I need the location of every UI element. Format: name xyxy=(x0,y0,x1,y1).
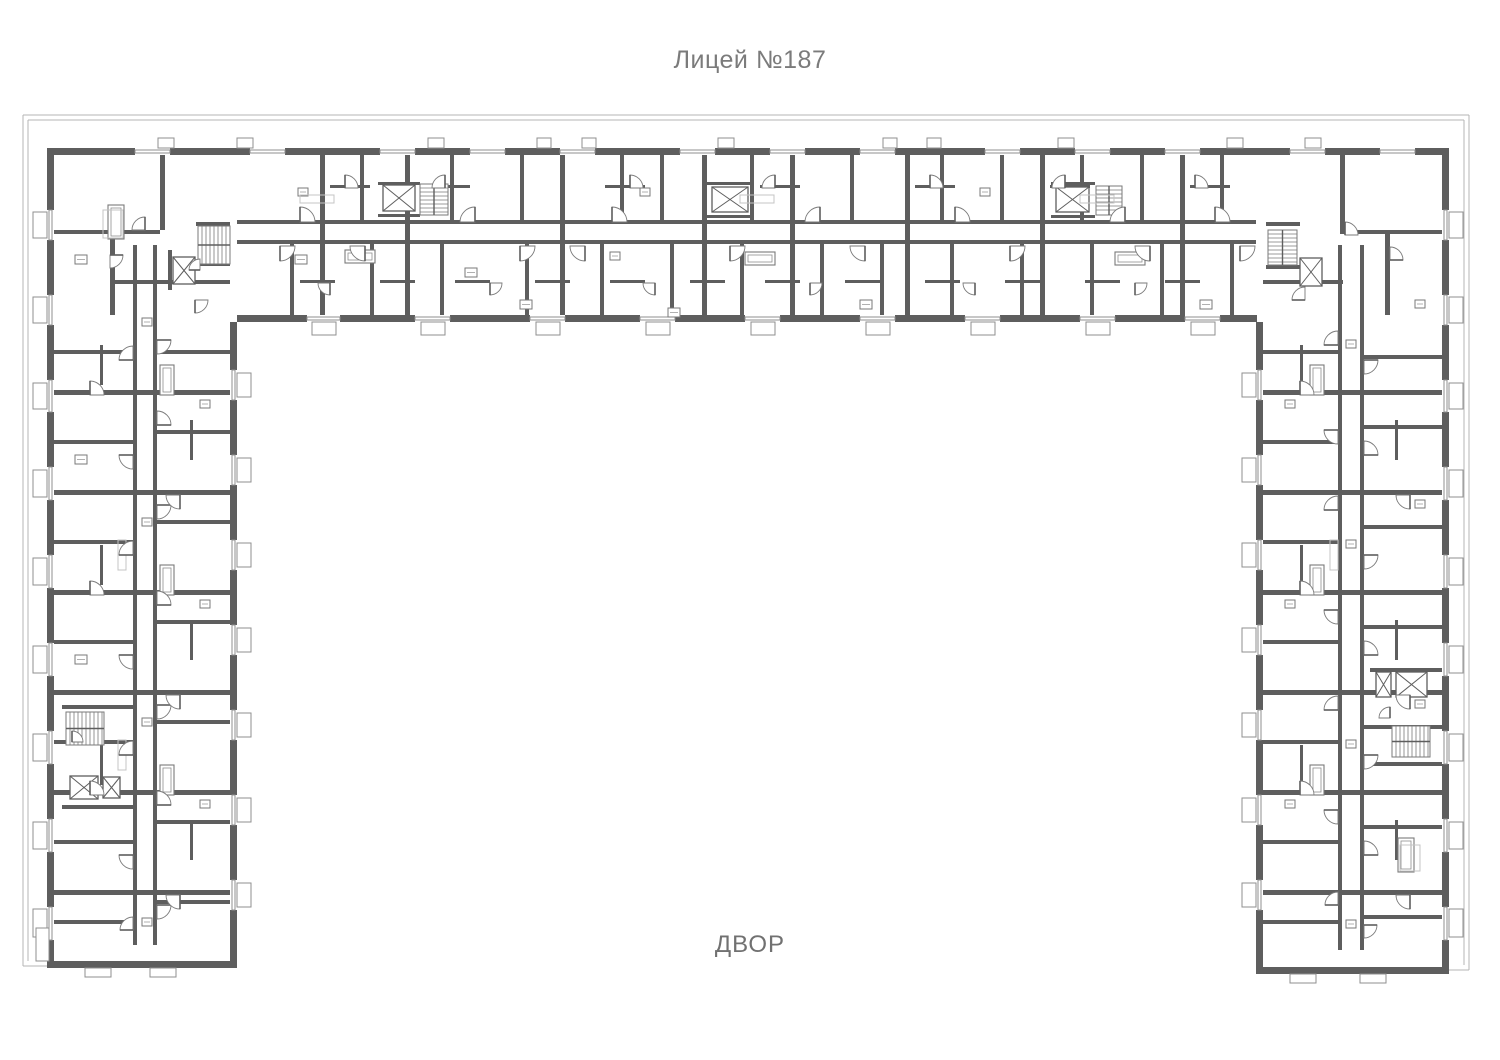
window-sill xyxy=(1449,558,1463,585)
door-swing xyxy=(1324,610,1338,624)
wall-segment xyxy=(1000,155,1004,220)
door-swing xyxy=(762,175,775,188)
window-opening xyxy=(530,317,565,320)
wall-segment xyxy=(707,182,753,185)
wall-segment xyxy=(47,148,135,155)
wall-segment xyxy=(1360,330,1364,950)
wall-segment xyxy=(196,222,230,226)
window-opening xyxy=(49,210,52,240)
wall-segment xyxy=(110,230,115,315)
wall-segment xyxy=(54,890,230,895)
wall-segment xyxy=(230,322,237,370)
wall-segment xyxy=(675,315,745,322)
window-sill xyxy=(1242,543,1256,567)
wall-segment xyxy=(380,280,415,283)
window-sill xyxy=(1449,383,1463,409)
window-opening xyxy=(860,150,895,153)
door-swing xyxy=(110,255,123,268)
window-sill xyxy=(866,322,890,335)
wall-segment xyxy=(1338,245,1342,330)
wall-segment xyxy=(1364,825,1442,829)
wall-segment xyxy=(880,244,884,315)
window-sill xyxy=(85,968,111,977)
door-swing xyxy=(955,207,970,222)
wall-segment xyxy=(54,390,230,395)
wall-segment xyxy=(1300,745,1303,785)
wall-segment xyxy=(1266,222,1300,226)
wall-segment xyxy=(285,148,380,155)
window-opening xyxy=(1444,210,1447,240)
window-sill xyxy=(237,883,251,907)
wall-segment xyxy=(230,400,237,455)
door-swing xyxy=(132,217,145,230)
window-sill xyxy=(971,322,995,335)
wall-segment xyxy=(100,345,103,385)
entrance-porch xyxy=(1058,138,1074,148)
wall-segment xyxy=(1442,588,1449,643)
window-sill xyxy=(1242,713,1256,737)
wall-segment xyxy=(230,910,237,968)
wall-segment xyxy=(1442,325,1449,380)
wall-segment xyxy=(1263,790,1442,795)
wall-segment xyxy=(1230,244,1234,315)
window-sill xyxy=(1449,646,1463,673)
wall-segment xyxy=(190,420,193,460)
wall-segment xyxy=(378,214,420,217)
wall-segment xyxy=(133,330,137,945)
wall-segment xyxy=(47,961,237,968)
entrance-porch xyxy=(537,138,551,148)
window-sill xyxy=(150,968,176,977)
wall-segment xyxy=(54,230,160,234)
window-sill xyxy=(1242,883,1256,907)
wall-segment xyxy=(1442,240,1449,295)
door-swing xyxy=(1396,695,1410,709)
wall-segment xyxy=(535,280,570,283)
wall-segment xyxy=(1385,230,1390,315)
wall-segment xyxy=(1256,825,1263,880)
window-sill xyxy=(237,798,251,822)
window-sill xyxy=(237,373,251,397)
window-sill xyxy=(646,322,670,335)
wall-segment xyxy=(230,825,237,880)
wall-segment xyxy=(610,280,645,283)
window-opening xyxy=(1444,907,1447,940)
door-swing xyxy=(1379,707,1390,718)
door-swing xyxy=(1135,283,1147,295)
wall-segment xyxy=(1364,355,1442,359)
wall-segment xyxy=(1200,148,1290,155)
wall-segment xyxy=(190,620,193,660)
window-sill xyxy=(421,322,445,335)
door-swing xyxy=(1390,247,1403,260)
window-sill xyxy=(1449,470,1463,497)
wall-segment xyxy=(895,148,985,155)
wall-segment xyxy=(1256,967,1449,974)
wall-segment xyxy=(925,280,960,283)
window-opening xyxy=(232,370,235,400)
wall-segment xyxy=(715,148,770,155)
window-opening xyxy=(745,317,780,320)
window-opening xyxy=(1258,540,1261,570)
wall-segment xyxy=(455,280,490,283)
window-opening xyxy=(1444,731,1447,764)
window-sill xyxy=(237,543,251,567)
window-sill xyxy=(33,383,47,409)
wall-segment xyxy=(1300,545,1303,585)
window-opening xyxy=(1185,317,1220,320)
door-swing xyxy=(119,655,133,669)
window-sill xyxy=(33,212,47,238)
wall-segment xyxy=(47,588,54,643)
wall-segment xyxy=(1263,920,1338,924)
wall-segment xyxy=(765,280,800,283)
window-opening xyxy=(1080,317,1115,320)
entrance-porch xyxy=(158,138,174,148)
wall-segment xyxy=(1256,322,1263,370)
wall-segment xyxy=(168,250,172,290)
window-sill xyxy=(33,822,47,849)
wall-segment xyxy=(230,655,237,710)
window-sill xyxy=(312,322,336,335)
window-opening xyxy=(135,150,170,153)
wall-segment xyxy=(520,155,524,220)
wall-segment xyxy=(1338,330,1342,950)
window-opening xyxy=(680,150,715,153)
door-swing xyxy=(1364,641,1378,655)
window-opening xyxy=(415,317,450,320)
bathtub xyxy=(160,365,174,395)
wall-segment xyxy=(1005,280,1040,283)
window-opening xyxy=(232,710,235,740)
window-opening xyxy=(470,150,505,153)
floor-plan-drawing xyxy=(0,0,1500,1060)
wall-segment xyxy=(170,148,250,155)
window-opening xyxy=(1258,795,1261,825)
window-sill xyxy=(751,322,775,335)
window-opening xyxy=(1258,880,1261,910)
door-swing xyxy=(850,246,865,261)
wall-segment xyxy=(690,280,725,283)
wall-segment xyxy=(47,764,54,819)
window-opening xyxy=(560,150,595,153)
window-opening xyxy=(49,819,52,852)
window-sill xyxy=(33,470,47,497)
entrance-porch xyxy=(1227,138,1243,148)
wall-segment xyxy=(950,244,954,315)
wall-segment xyxy=(1220,315,1257,322)
wall-segment xyxy=(1040,155,1045,315)
door-swing xyxy=(157,705,171,719)
wall-segment xyxy=(1263,890,1442,895)
window-opening xyxy=(232,880,235,910)
wall-segment xyxy=(54,690,230,695)
window-opening xyxy=(1165,150,1200,153)
door-swing xyxy=(1396,895,1410,909)
entrance-porch xyxy=(927,138,941,148)
window-sill xyxy=(1449,297,1463,323)
wall-segment xyxy=(1263,540,1338,544)
wall-segment xyxy=(1051,215,1095,218)
wall-segment xyxy=(780,315,860,322)
window-sill xyxy=(33,734,47,761)
wall-segment xyxy=(47,325,54,380)
door-swing xyxy=(570,246,585,261)
window-sill xyxy=(1290,974,1316,983)
wall-segment xyxy=(237,240,1256,244)
door-swing xyxy=(119,455,133,469)
door-swing xyxy=(805,207,820,222)
window-opening xyxy=(232,795,235,825)
wall-segment xyxy=(1364,425,1442,429)
wall-segment xyxy=(600,244,604,315)
wall-segment xyxy=(62,705,137,709)
window-opening xyxy=(1258,455,1261,485)
wall-segment xyxy=(1442,764,1449,819)
wall-segment xyxy=(1165,280,1200,283)
wall-segment xyxy=(237,315,307,322)
counter-outline xyxy=(1330,540,1338,570)
wall-segment xyxy=(54,640,133,644)
door-swing xyxy=(120,917,133,930)
window-opening xyxy=(1444,467,1447,500)
wall-segment xyxy=(1000,315,1080,322)
wall-segment xyxy=(1263,440,1338,444)
wall-segment xyxy=(54,440,133,444)
window-sill xyxy=(237,628,251,652)
wall-segment xyxy=(47,500,54,555)
door-swing xyxy=(157,905,171,919)
door-swing xyxy=(1324,496,1338,510)
wall-segment xyxy=(47,412,54,467)
door-swing xyxy=(157,505,171,519)
wall-segment xyxy=(1020,148,1075,155)
wall-segment xyxy=(1263,490,1442,495)
entrance-porch xyxy=(582,138,596,148)
door-swing xyxy=(195,300,208,313)
floor-plan-sheet: Лицей №187 ДВОР xyxy=(0,0,1500,1060)
window-opening xyxy=(1444,380,1447,412)
door-swing xyxy=(1195,175,1208,188)
window-sill xyxy=(33,297,47,323)
wall-segment xyxy=(190,820,193,860)
door-swing xyxy=(119,855,133,869)
wall-segment xyxy=(702,155,707,315)
wall-segment xyxy=(157,350,230,354)
wall-segment xyxy=(237,220,1256,224)
window-sill xyxy=(33,558,47,585)
wall-segment xyxy=(1263,740,1338,744)
wall-segment xyxy=(54,590,230,595)
wall-segment xyxy=(750,155,754,220)
wall-segment xyxy=(160,155,165,230)
window-opening xyxy=(232,625,235,655)
wall-segment xyxy=(1263,590,1442,595)
wall-segment xyxy=(157,520,230,524)
door-swing xyxy=(1324,810,1338,824)
door-swing xyxy=(1364,925,1377,938)
wall-segment xyxy=(1256,910,1263,974)
wall-segment xyxy=(1256,655,1263,710)
wall-segment xyxy=(1140,155,1144,220)
wall-segment xyxy=(1090,244,1094,315)
window-opening xyxy=(307,317,340,320)
wall-segment xyxy=(1442,412,1449,467)
wall-segment xyxy=(1263,840,1338,844)
window-opening xyxy=(1258,625,1261,655)
wall-segment xyxy=(707,215,753,218)
window-opening xyxy=(1444,819,1447,852)
door-swing xyxy=(1324,331,1338,345)
window-sill xyxy=(237,458,251,482)
door-swing xyxy=(318,283,330,295)
bathtub xyxy=(160,765,174,795)
window-opening xyxy=(232,455,235,485)
window-opening xyxy=(49,731,52,764)
door-swing xyxy=(1215,207,1230,222)
wall-segment xyxy=(905,155,910,315)
window-opening xyxy=(770,150,805,153)
window-sill xyxy=(1360,974,1386,983)
wall-segment xyxy=(440,244,444,315)
wall-segment xyxy=(1364,625,1442,629)
wall-segment xyxy=(1266,265,1300,269)
wall-segment xyxy=(790,155,795,315)
door-swing xyxy=(963,283,975,295)
entrance-porch xyxy=(237,138,253,148)
door-swing xyxy=(1396,495,1410,509)
wall-segment xyxy=(1256,485,1263,540)
wall-segment xyxy=(230,740,237,795)
wall-segment xyxy=(1360,245,1364,330)
window-sill xyxy=(1242,458,1256,482)
window-opening xyxy=(1444,295,1447,325)
wall-segment xyxy=(670,244,674,315)
wall-segment xyxy=(157,720,230,724)
door-swing xyxy=(1292,287,1305,300)
wall-segment xyxy=(47,852,54,907)
window-sill xyxy=(1449,734,1463,761)
window-opening xyxy=(49,555,52,588)
door-swing xyxy=(1364,441,1378,455)
door-swing xyxy=(432,175,445,188)
window-sill xyxy=(1242,373,1256,397)
wall-segment xyxy=(47,155,54,210)
wall-segment xyxy=(47,240,54,295)
wall-segment xyxy=(845,280,880,283)
door-swing xyxy=(1240,246,1255,261)
wall-segment xyxy=(1256,570,1263,625)
wall-segment xyxy=(1340,155,1345,230)
window-sill xyxy=(1242,628,1256,652)
window-sill xyxy=(1191,322,1215,335)
wall-segment xyxy=(133,245,137,330)
window-opening xyxy=(1258,710,1261,740)
window-opening xyxy=(1075,150,1110,153)
door-swing xyxy=(119,346,133,360)
window-sill xyxy=(237,713,251,737)
window-opening xyxy=(49,295,52,325)
window-opening xyxy=(860,317,895,320)
window-sill xyxy=(1086,322,1110,335)
window-opening xyxy=(1258,370,1261,400)
window-opening xyxy=(49,643,52,676)
door-swing xyxy=(300,207,315,222)
bathtub xyxy=(160,565,174,595)
window-opening xyxy=(232,540,235,570)
wall-segment xyxy=(230,570,237,625)
wall-segment xyxy=(1256,400,1263,455)
wall-segment xyxy=(54,490,230,495)
door-swing xyxy=(1364,555,1378,569)
window-sill xyxy=(536,322,560,335)
window-opening xyxy=(49,380,52,412)
wall-segment xyxy=(1370,762,1442,766)
window-opening xyxy=(1444,555,1447,588)
wall-segment xyxy=(100,545,103,585)
door-swing xyxy=(490,283,502,295)
wall-segment xyxy=(157,430,230,434)
window-sill xyxy=(1449,909,1463,937)
door-swing xyxy=(157,411,171,425)
door-swing xyxy=(460,207,475,222)
window-opening xyxy=(250,150,285,153)
wall-segment xyxy=(405,155,410,315)
window-opening xyxy=(965,317,1000,320)
wall-segment xyxy=(1442,852,1449,907)
wall-segment xyxy=(230,485,237,540)
door-swing xyxy=(630,175,643,188)
door-swing xyxy=(345,175,358,188)
wall-segment xyxy=(560,155,565,315)
wall-segment xyxy=(660,155,664,220)
wall-segment xyxy=(54,920,133,924)
wall-segment xyxy=(54,540,133,544)
wall-segment xyxy=(1415,148,1449,155)
window-opening xyxy=(1290,150,1325,153)
window-sill xyxy=(36,928,49,961)
wall-segment xyxy=(157,820,230,824)
wall-segment xyxy=(565,315,640,322)
wall-segment xyxy=(340,315,415,322)
wall-segment xyxy=(153,330,157,945)
door-swing xyxy=(643,283,655,295)
wall-segment xyxy=(1085,280,1120,283)
window-opening xyxy=(49,467,52,500)
wall-segment xyxy=(895,315,965,322)
wall-segment xyxy=(820,244,824,315)
window-opening xyxy=(380,150,415,153)
wall-segment xyxy=(1160,244,1164,315)
wall-segment xyxy=(1256,740,1263,795)
wall-segment xyxy=(1110,148,1165,155)
wall-segment xyxy=(54,840,133,844)
wall-segment xyxy=(850,155,854,220)
wall-segment xyxy=(1364,915,1442,919)
wall-segment xyxy=(1300,345,1303,385)
door-swing xyxy=(612,207,627,222)
wall-segment xyxy=(153,245,157,330)
wall-segment xyxy=(1180,155,1185,315)
wall-segment xyxy=(1395,420,1398,460)
door-swing xyxy=(1324,696,1338,710)
entrance-porch xyxy=(718,138,734,148)
wall-segment xyxy=(505,148,560,155)
wall-segment xyxy=(157,620,230,624)
bathtub xyxy=(745,252,775,265)
window-sill xyxy=(1449,822,1463,849)
wall-segment xyxy=(450,315,530,322)
